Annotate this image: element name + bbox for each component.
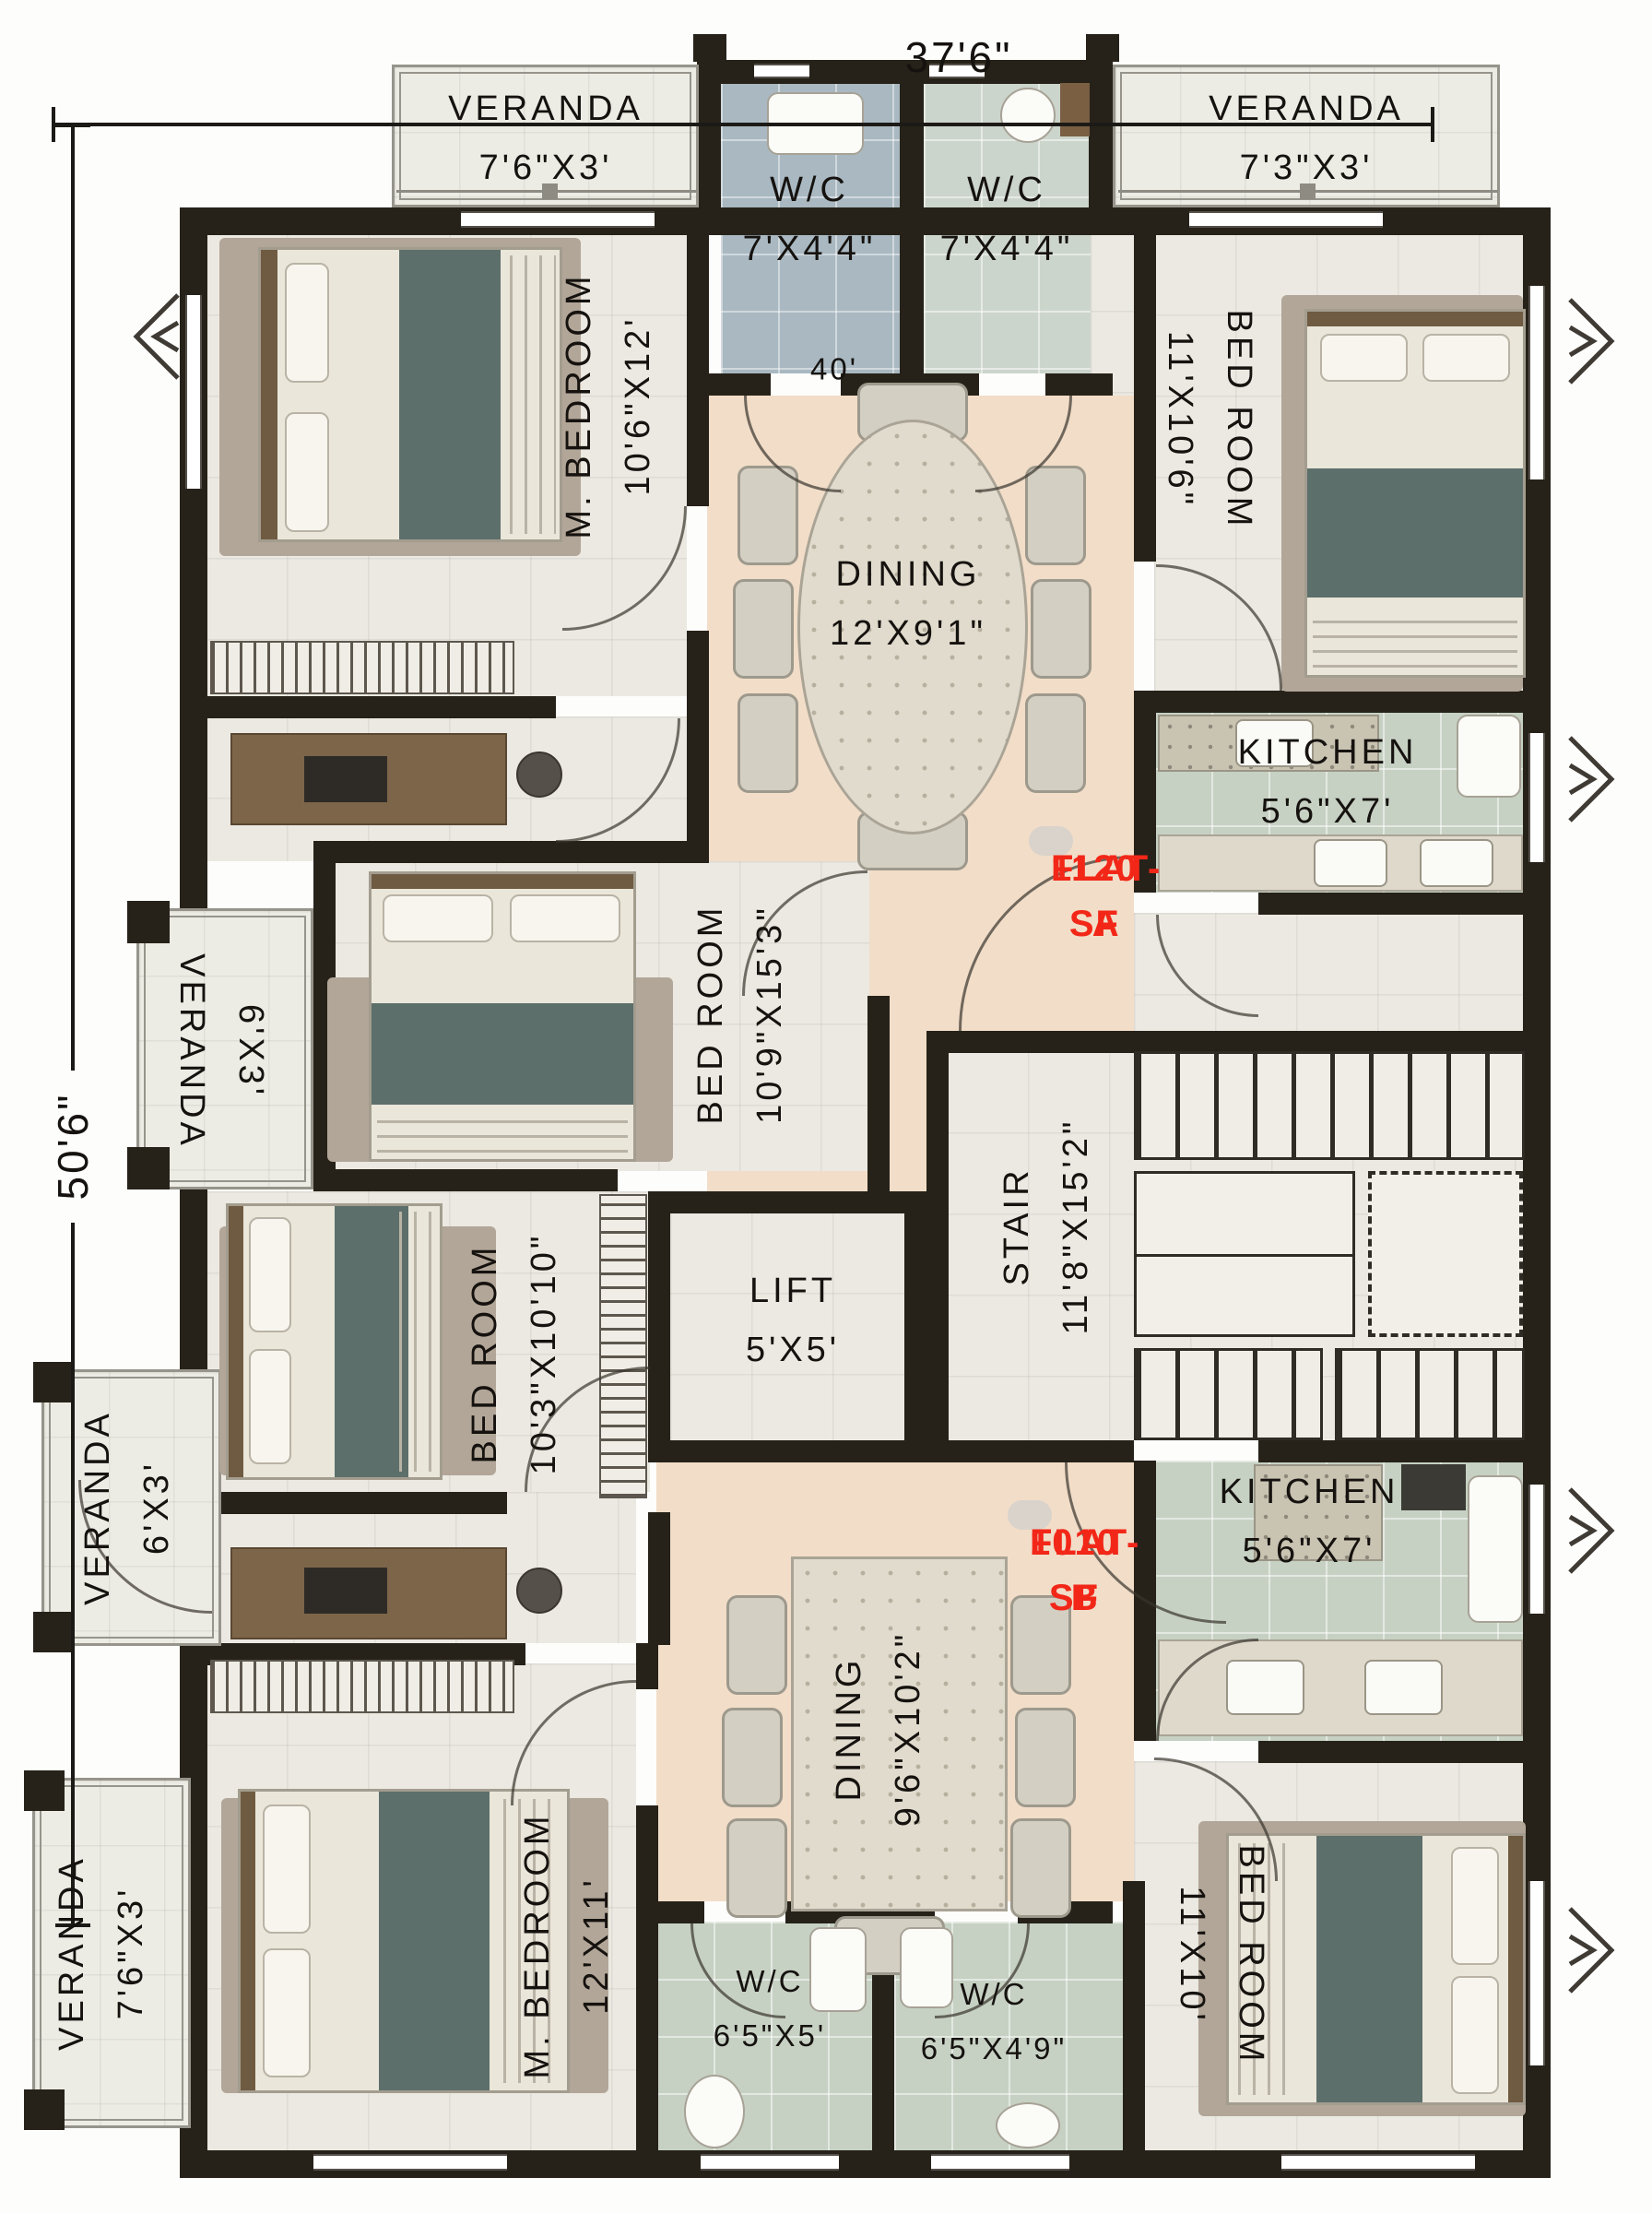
dining-a-chair [737,693,798,793]
room-name: BED ROOM [693,905,728,1125]
desk-nook-right-wall [648,1512,670,1645]
dimension-tick [1431,107,1434,142]
headboard [1307,312,1523,326]
window-break-icon [127,290,183,383]
label-veranda-top-right: VERANDA 7'3"X3' [1209,91,1404,185]
dining-a-chair [1025,466,1086,565]
dimension-line-left-2 [71,1223,75,1925]
window-right-kitchen-b [1528,1485,1545,1614]
mbr-a-right-wall-lower [687,631,709,863]
mbr-a-bottom-wall [206,696,556,718]
headboard [261,250,277,539]
dining-b-chair [722,1708,783,1807]
flat-b-badge: FLAT-B 1010 SF [1008,1500,1052,1530]
room-name: KITCHEN [1220,1474,1399,1509]
window-right-bedroom-a [1528,286,1545,479]
lift-wall-right [904,1191,926,1462]
room-size: 11'X10' [1174,1886,1209,2024]
stair-flight-bottom-right [1335,1348,1525,1440]
sheet-folds [1313,616,1517,668]
flat-area: 1120 SF [1051,841,1139,952]
kitchen-a-sink-1 [1314,839,1387,887]
room-name: DINING [832,1657,867,1802]
column-veranda-bl-bottom [24,2089,65,2130]
room-name: BED ROOM [1221,310,1257,530]
room-size: 6'5"X4'9" [921,2033,1067,2064]
room-name: W/C [770,172,849,207]
pillow [285,263,329,383]
kitchen-b-fridge [1468,1475,1523,1623]
laptop-flat-a [304,756,387,802]
label-veranda-mid-left-upper: VERANDA 6'X3' [174,953,268,1149]
mbr-b-right-wall-lower [636,1805,658,2178]
column-veranda-ml2-top [33,1362,74,1402]
lift-wall-left [648,1191,670,1462]
dining-b-chair [1010,1818,1071,1918]
room-size: 11'8"X15'2" [1058,1118,1093,1335]
room-size: 9'6"X10'2" [891,1631,926,1828]
label-dining-b: DINING 9'6"X10'2" [832,1631,926,1828]
dimension-line-left-1 [71,125,75,1071]
flat-a-badge: FLAT-A 1120 SF [1029,826,1073,856]
pillow [249,1217,291,1332]
pillow [383,894,493,942]
laptop-flat-b [304,1568,387,1614]
kitchen-b-bottom-wall [1258,1741,1525,1763]
pillow [249,1349,291,1464]
window-bottom-3 [931,2154,1069,2171]
label-master-bedroom-b: M. BEDROOM 12'X11' [520,1812,614,2078]
wc-block-wall-left [697,60,721,235]
label-stair: STAIR 11'8"X15'2" [999,1118,1093,1335]
label-dining-a: DINING 12'X9'1" [830,557,986,651]
wc-b-right-toilet [996,2102,1060,2148]
bed-bedroom-a [1304,309,1526,678]
pillow [510,894,620,942]
headboard [229,1206,243,1477]
sheet-folds [510,255,556,534]
label-bedroom-b-left: BED ROOM 10'3"X10'10" [467,1233,561,1475]
wardrobe-mbr-b [210,1660,514,1713]
dining-a-chair [737,466,798,565]
wc-a-right-toilet [1000,88,1056,143]
room-name: W/C [960,1979,1027,2009]
lift-wall-top [648,1191,926,1213]
room-name: VERANDA [448,91,643,126]
mbr-a-right-wall-upper [687,231,709,506]
label-veranda-mid-left-lower: VERANDA 6'X3' [80,1410,174,1605]
room-name: DINING [835,557,980,592]
label-kitchen-b: KITCHEN 5'6"X7' [1220,1474,1399,1568]
pillow [263,1948,311,2077]
kitchen-a-sink-2 [1420,839,1493,887]
label-veranda-bottom-left: VERANDA 7'6"X3' [54,1855,148,2051]
floor-plan: VERANDA 7'6"X3' W/C 7'X4'4" W/C 7'X4'4" … [0,0,1652,2213]
window-right-bedroom-b [1528,1881,1545,2065]
dining-b-chair [726,1595,787,1695]
window-break-icon [1565,295,1621,387]
column-veranda-ml2-bottom [33,1612,74,1652]
label-lift: LIFT 5'X5' [746,1273,840,1367]
stair-flight-bottom-left [1134,1348,1323,1440]
label-interior-dimension: 40' [810,354,858,385]
blanket [372,1003,633,1105]
room-size: 11'X10'6" [1162,331,1198,508]
dining-b-chair [726,1818,787,1918]
stair-break-line [1368,1171,1523,1337]
stair-wall-bottom-2 [1258,1440,1525,1462]
wc-b-left-toilet [684,2075,745,2148]
bed-bedroom-middle [369,871,636,1162]
room-size: 5'X5' [746,1332,840,1367]
room-name: VERANDA [54,1855,89,2051]
room-name: VERANDA [1209,91,1404,126]
dimension-left-text: 50'6" [48,1093,98,1201]
room-name: BED ROOM [467,1244,502,1464]
flat-area: 1010 SF [1030,1515,1119,1626]
pillow [285,412,329,532]
column-wc-right [1086,34,1119,62]
pillow [1451,1847,1499,1965]
kitchen-a-fridge [1457,715,1521,798]
bed-mbr-a [258,247,562,542]
column-wc-left [693,34,726,62]
wc-divider-wall [900,60,924,396]
blanket [1307,468,1523,598]
kitchen-b-sink-2 [1364,1660,1443,1715]
pillow [263,1805,311,1934]
room-size: 6'X3' [233,1004,268,1098]
room-name: LIFT [749,1273,836,1308]
label-wc-b-left: W/C 6'5"X5' [714,1966,826,2051]
wc-block-wall-right [1089,60,1113,235]
headboard [241,1792,255,2090]
stair-landing [1134,1171,1355,1337]
room-size: 6'5"X5' [714,2020,826,2051]
dining-a-chair [1031,579,1091,679]
dining-b-chair [1015,1708,1076,1807]
column-veranda-bl-top [24,1770,65,1811]
room-name: VERANDA [80,1410,115,1605]
window-break-icon [1565,1485,1621,1577]
room-size: 10'6"X12' [620,316,655,496]
room-size: 6'X3' [139,1461,174,1555]
dining-a-chair [1025,693,1086,793]
room-name: KITCHEN [1238,735,1418,770]
room-size: 7'6"X3' [479,150,613,185]
stair-wall-left [926,1031,949,1462]
label-kitchen-a: KITCHEN 5'6"X7' [1238,735,1418,829]
headboard [1508,1836,1523,2102]
column-veranda-ml1-bottom [127,1147,170,1189]
wc-b-top-wall-1 [656,1901,704,1923]
room-size: 5'6"X7' [1243,1533,1376,1568]
kitchen-a-top-wall [1134,691,1525,713]
blanket [1316,1836,1422,2102]
label-bedroom-a-right: BED ROOM 11'X10'6" [1162,310,1257,530]
stair-wall-top [926,1031,1525,1053]
stool-flat-b [516,1568,562,1614]
dimension-tick [55,124,90,127]
room-name: M. BEDROOM [520,1812,555,2078]
kitchen-b-stove [1401,1464,1466,1510]
bedroom-middle-bottom-wall [313,1169,618,1191]
label-wc-a-left: W/C 7'X4'4" [743,172,877,266]
label-wc-b-right: W/C 6'5"X4'9" [921,1979,1067,2064]
label-master-bedroom-a: M. BEDROOM 10'6"X12' [561,272,655,538]
window-top-left [461,211,655,228]
window-right-kitchen-a [1528,733,1545,862]
room-name: W/C [967,172,1046,207]
stair-landing-divider [1137,1254,1352,1257]
window-wc-top-1 [754,64,809,78]
label-wc-a-right: W/C 7'X4'4" [940,172,1074,266]
room-name: M. BEDROOM [561,272,596,538]
headboard [372,874,633,889]
room-size: 7'X4'4" [743,231,877,266]
room-name: VERANDA [174,953,209,1149]
dimension-value: 40' [810,354,858,385]
stair-flight-top [1134,1051,1525,1160]
lift-wall-bottom [648,1440,926,1462]
dining-a-chair [733,579,794,679]
pillow [1422,334,1510,382]
mbr-b-right-wall-upper [636,1643,658,1689]
room-size: 12'X11' [579,1876,614,2015]
bedroom-b-right-left-wall [1123,1881,1145,2178]
window-bottom-2 [701,2154,839,2171]
blanket [335,1206,408,1477]
room-name: STAIR [999,1166,1034,1285]
room-size: 10'9"X15'3" [752,905,787,1124]
bedroom-a-left-wall [1134,231,1156,562]
room-name: BED ROOM [1233,1845,1268,2065]
window-top-right [1189,211,1383,228]
dimension-top-text: 37'6" [905,32,1013,82]
window-left-mbra [185,295,202,489]
window-bottom-1 [313,2154,507,2171]
label-bedroom-middle: BED ROOM 10'9"X15'3" [693,905,787,1125]
pillow [1451,1976,1499,2094]
room-size: 7'X4'4" [940,231,1074,266]
blanket [379,1792,490,2090]
room-size: 7'6"X3' [113,1887,148,2020]
sheet-folds [399,1212,440,1472]
window-bottom-4 [1281,2154,1475,2171]
wardrobe-mbr-a [210,641,514,694]
pillow [1320,334,1408,382]
window-break-icon [1565,733,1621,825]
label-veranda-top-left: VERANDA 7'6"X3' [448,91,643,185]
bedroom-middle-top-wall [334,841,707,863]
room-size: 5'6"X7' [1261,794,1395,829]
label-bedroom-b-right: BED ROOM 11'X10' [1174,1845,1268,2065]
wc-a-bottom-wall-3 [1045,373,1113,396]
bed-bedroom-b-left [226,1203,442,1480]
room-size: 12'X9'1" [830,616,986,651]
room-size: 7'3"X3' [1240,150,1374,185]
stair-wall-bottom-1 [926,1440,1134,1462]
blanket [399,250,501,539]
room-name: W/C [736,1966,803,1996]
column-veranda-ml1-top [127,901,170,943]
sheet-folds [377,1112,628,1153]
wc-a-right-shelf [1060,83,1090,136]
room-size: 10'3"X10'10" [526,1233,561,1475]
bedroom-middle-right-wall [867,996,890,1191]
bedroom-b-left-bottom-wall [212,1492,507,1514]
kitchen-a-bottom-wall [1258,893,1525,915]
window-break-icon [1565,1904,1621,1996]
